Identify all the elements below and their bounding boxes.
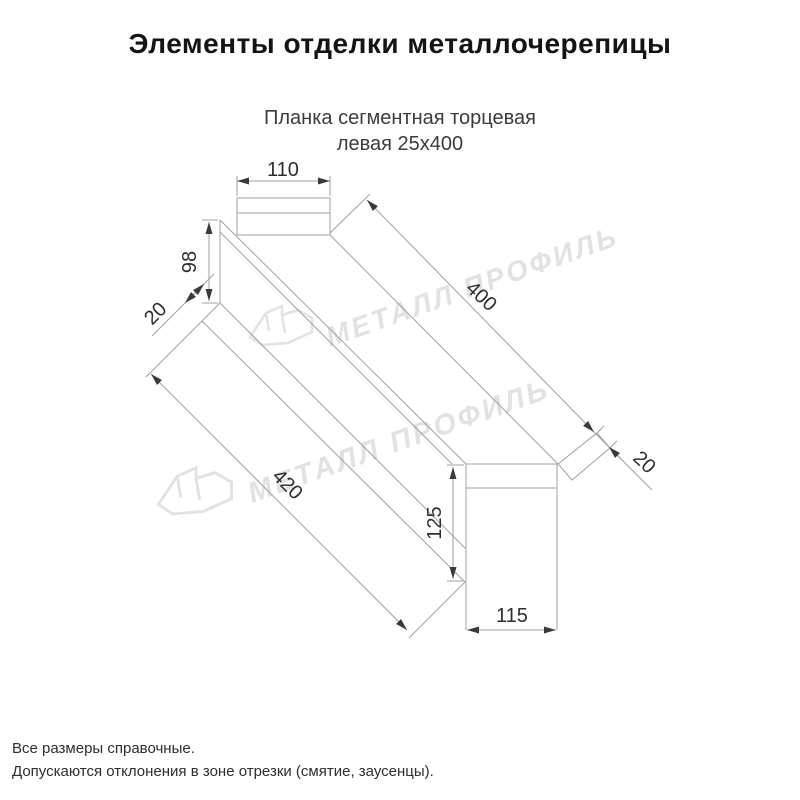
dim-115-label: 115 — [496, 605, 528, 627]
footer-note-line2: Допускаются отклонения в зоне отрезки (с… — [12, 760, 434, 783]
dim-110-label: 110 — [267, 159, 299, 181]
page: Элементы отделки металлочерепицы Планка … — [0, 0, 800, 800]
dim-98-label: 98 — [179, 251, 201, 273]
dimension-125: 125 — [424, 465, 464, 581]
dimension-110: 110 — [237, 159, 330, 196]
dimension-20-right: 20 — [597, 426, 660, 478]
technical-drawing: МЕТАЛЛ ПРОФИЛЬ МЕТАЛЛ ПРОФИЛЬ — [0, 140, 800, 670]
dimension-98: 98 — [179, 220, 218, 303]
dim-125-label: 125 — [424, 506, 446, 539]
watermark-upper: МЕТАЛЛ ПРОФИЛЬ — [250, 220, 623, 352]
footer-note-line1: Все размеры справочные. — [12, 737, 434, 760]
dim-20-right-label: 20 — [628, 447, 659, 478]
page-title: Элементы отделки металлочерепицы — [0, 28, 800, 60]
footer-notes: Все размеры справочные. Допускаются откл… — [12, 737, 434, 783]
top-flange-face — [237, 198, 330, 235]
dimension-115: 115 — [467, 605, 556, 630]
dim-20-left-label: 20 — [140, 298, 171, 329]
dimension-20-left: 20 — [140, 274, 214, 336]
watermark-lower: МЕТАЛЛ ПРОФИЛЬ — [158, 373, 554, 514]
metal-profil-logo-icon — [158, 468, 231, 514]
metal-profil-logo-icon — [250, 306, 312, 345]
subtitle-line1: Планка сегментная торцевая — [0, 105, 800, 131]
